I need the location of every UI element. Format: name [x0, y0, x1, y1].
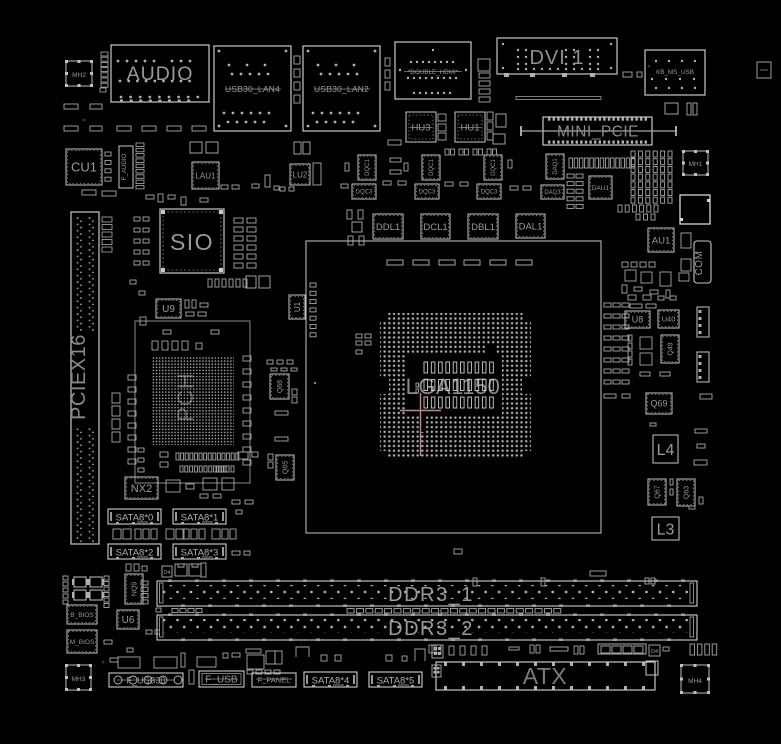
svg-text:MH1: MH1 — [689, 161, 703, 168]
svg-text:DQC3: DQC3 — [356, 190, 373, 196]
svg-text:F_AUDIO: F_AUDIO — [121, 153, 128, 180]
svg-text:DDL1: DDL1 — [376, 222, 400, 233]
svg-text:MINI_PCIE: MINI_PCIE — [557, 124, 639, 141]
svg-text:DAU1: DAU1 — [592, 185, 610, 192]
svg-text:F_PANEL: F_PANEL — [258, 676, 291, 685]
svg-text:DQC3: DQC3 — [419, 190, 436, 196]
svg-text:*DOUBLE_HDMI*: *DOUBLE_HDMI* — [408, 69, 459, 76]
svg-text:DAL1: DAL1 — [519, 221, 543, 232]
svg-text:DCL1: DCL1 — [423, 222, 447, 233]
svg-text:U8: U8 — [632, 315, 644, 325]
svg-text:SIO: SIO — [170, 229, 214, 255]
svg-text:DDR3_2: DDR3_2 — [388, 618, 474, 640]
svg-text:MH4: MH4 — [688, 678, 702, 685]
svg-text:DQC3: DQC3 — [481, 190, 498, 196]
svg-text:MH2: MH2 — [72, 72, 86, 79]
svg-text:Q69: Q69 — [650, 399, 667, 409]
svg-text:NQ9: NQ9 — [132, 582, 139, 597]
svg-text:Q67: Q67 — [655, 485, 662, 498]
svg-text:L3: L3 — [657, 521, 675, 538]
svg-text:LU2: LU2 — [293, 170, 308, 179]
svg-text:DAQ3: DAQ3 — [544, 190, 561, 196]
svg-text:D4: D4 — [651, 649, 658, 655]
svg-text:KB_MS_USB: KB_MS_USB — [656, 69, 694, 76]
svg-text:D4: D4 — [163, 570, 170, 576]
svg-text:M_BIOS: M_BIOS — [70, 639, 95, 646]
svg-text:DAQ1: DAQ1 — [553, 158, 559, 175]
svg-text:HU3: HU3 — [411, 123, 430, 134]
svg-text:L4: L4 — [657, 442, 675, 459]
svg-text:NX2: NX2 — [131, 483, 152, 495]
svg-text:CU1: CU1 — [71, 160, 97, 175]
svg-text:Q66: Q66 — [277, 380, 284, 393]
svg-text:LAU1: LAU1 — [195, 171, 216, 180]
svg-text:U6: U6 — [122, 615, 135, 626]
svg-text:F_USB: F_USB — [205, 675, 238, 686]
svg-text:PCIEX16: PCIEX16 — [68, 334, 90, 420]
svg-text:MH3: MH3 — [72, 676, 86, 683]
svg-text:Q65: Q65 — [283, 461, 290, 474]
svg-text:COM: COM — [694, 251, 705, 276]
svg-text:U9: U9 — [162, 304, 175, 315]
svg-text:U40: U40 — [662, 315, 676, 324]
svg-text:ATX: ATX — [523, 663, 568, 689]
svg-text:DDR3_1: DDR3_1 — [388, 584, 474, 606]
svg-text:Q63: Q63 — [684, 486, 691, 499]
svg-text:DQC1: DQC1 — [429, 159, 435, 176]
svg-text:PCH: PCH — [173, 372, 198, 421]
svg-text:AUDIO: AUDIO — [127, 63, 194, 85]
svg-text:U1: U1 — [293, 301, 302, 312]
svg-text:HU1: HU1 — [460, 123, 479, 134]
svg-text:AU1: AU1 — [652, 235, 670, 246]
svg-text:F_USB30: F_USB30 — [126, 676, 165, 686]
svg-text:DBL1: DBL1 — [471, 222, 495, 233]
svg-text:Q49: Q49 — [668, 342, 675, 355]
svg-text:B_BIOS: B_BIOS — [70, 612, 94, 619]
svg-text:DQC1: DQC1 — [491, 159, 497, 176]
svg-text:DQC1: DQC1 — [365, 159, 371, 176]
svg-text:DVI 1: DVI 1 — [529, 47, 584, 69]
